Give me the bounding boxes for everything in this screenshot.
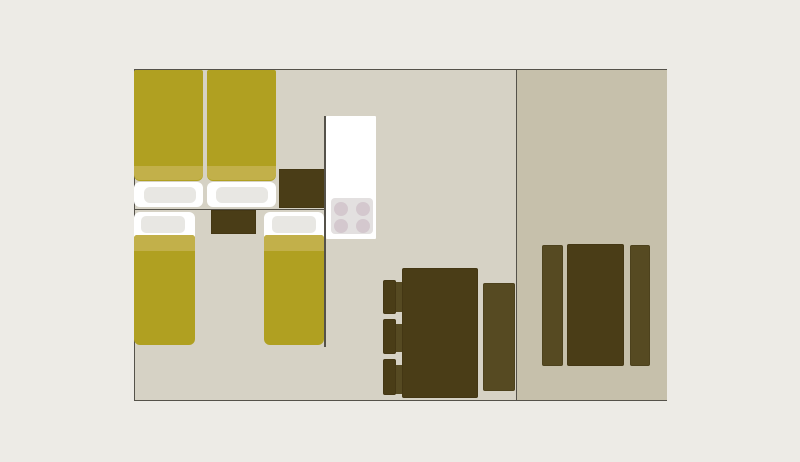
double-bed-right-cover-fold bbox=[207, 166, 276, 181]
single-bed-right-cover-fold bbox=[264, 235, 324, 251]
floorplan-canvas bbox=[0, 0, 800, 462]
single-bed-right-pillow bbox=[272, 216, 316, 233]
double-bed-right-cover bbox=[207, 70, 276, 181]
annex-table bbox=[567, 244, 624, 366]
caravan-floorplan bbox=[134, 69, 668, 401]
stove-burner-3 bbox=[334, 219, 348, 233]
double-bed-left-cover-fold bbox=[134, 166, 203, 181]
double-bed-right-pillow bbox=[216, 187, 269, 203]
single-bed-left-cover bbox=[134, 235, 195, 345]
double-bed-left-pillow bbox=[144, 187, 196, 203]
dining-bench bbox=[483, 283, 515, 392]
bedroom-wall-horizontal bbox=[134, 209, 325, 211]
nightstand-double-bed bbox=[279, 169, 325, 208]
single-bed-left-cover-fold bbox=[134, 235, 195, 251]
single-bed-left-pillow bbox=[141, 216, 185, 233]
stove-hob bbox=[331, 198, 374, 235]
dining-chair-1-back bbox=[383, 280, 396, 314]
dining-chair-3-back bbox=[383, 359, 396, 395]
double-bed-left-cover bbox=[134, 70, 203, 181]
annex-bench-left bbox=[542, 245, 564, 366]
dining-chair-2-back bbox=[383, 319, 396, 354]
stove-burner-1 bbox=[334, 202, 348, 216]
dining-table bbox=[402, 268, 479, 399]
annex-bench-right bbox=[630, 245, 650, 366]
stove-burner-2 bbox=[356, 202, 370, 216]
nightstand-single-beds bbox=[211, 210, 256, 234]
single-bed-right-cover bbox=[264, 235, 324, 345]
stove-burner-4 bbox=[356, 219, 370, 233]
